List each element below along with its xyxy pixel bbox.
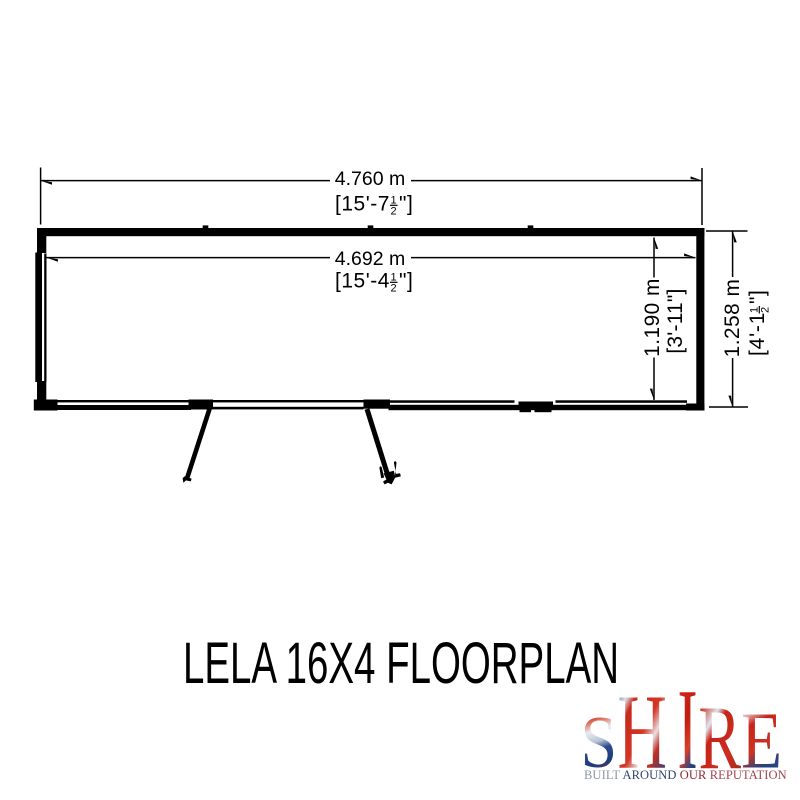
svg-text:4.760 m: 4.760 m xyxy=(335,168,405,190)
svg-text:"]: "] xyxy=(746,290,769,304)
svg-text:LELA 16X4 FLOORPLAN: LELA 16X4 FLOORPLAN xyxy=(183,631,619,696)
svg-text:"]: "] xyxy=(399,193,413,216)
svg-text:[3'-11"]: [3'-11"] xyxy=(664,288,687,353)
svg-text:1.190 m: 1.190 m xyxy=(641,278,664,357)
svg-text:2: 2 xyxy=(760,307,772,313)
svg-text:1.258 m: 1.258 m xyxy=(721,279,744,358)
svg-text:[15'-7: [15'-7 xyxy=(335,193,390,216)
svg-text:"]: "] xyxy=(399,270,413,293)
svg-text:BUILT AROUND OUR REPUTATION: BUILT AROUND OUR REPUTATION xyxy=(584,768,787,782)
svg-text:[15'-4: [15'-4 xyxy=(335,270,390,293)
svg-text:2: 2 xyxy=(391,283,397,295)
svg-text:2: 2 xyxy=(391,206,397,218)
svg-text:[4'-1: [4'-1 xyxy=(746,312,769,356)
svg-text:4.692 m: 4.692 m xyxy=(335,248,405,270)
